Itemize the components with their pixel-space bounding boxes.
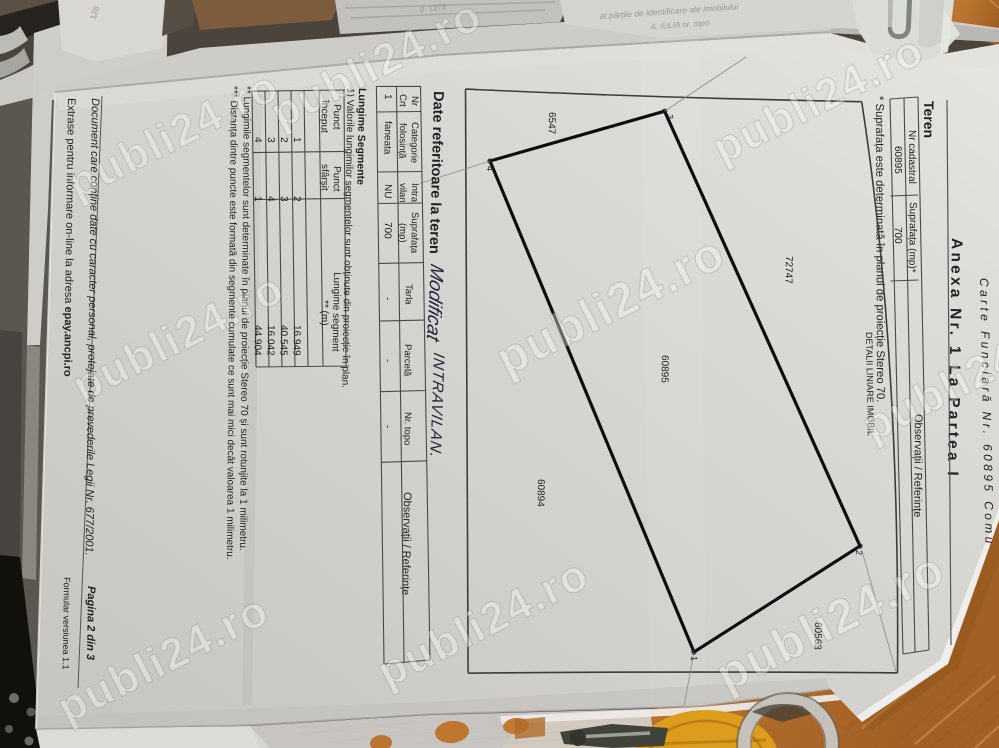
svg-text:1: 1 bbox=[382, 94, 393, 100]
svg-text:2: 2 bbox=[278, 137, 289, 143]
svg-text:Intra: Intra bbox=[409, 183, 420, 203]
svg-text:Suprafața: Suprafața bbox=[408, 212, 420, 254]
svg-text:** (m): ** (m) bbox=[319, 300, 330, 326]
svg-text:Nr cadastral: Nr cadastral bbox=[906, 130, 917, 184]
svg-text:Observații / Referințe: Observații / Referințe bbox=[399, 492, 413, 596]
svg-text:Formular versiunea 1.1: Formular versiunea 1.1 bbox=[61, 577, 72, 670]
svg-text:1: 1 bbox=[252, 196, 263, 202]
svg-text:44.904: 44.904 bbox=[251, 325, 263, 356]
svg-text:sfârșit: sfârșit bbox=[319, 164, 330, 191]
svg-text:60894: 60894 bbox=[535, 479, 546, 507]
svg-text:3: 3 bbox=[665, 114, 675, 119]
svg-text:Lungime Segmente: Lungime Segmente bbox=[354, 88, 368, 185]
svg-text:1: 1 bbox=[291, 137, 302, 143]
svg-text:vilan: vilan bbox=[397, 183, 408, 203]
svg-text:3: 3 bbox=[278, 196, 289, 202]
svg-text:Nr: Nr bbox=[409, 96, 420, 106]
svg-text:Categorie: Categorie bbox=[408, 122, 420, 163]
svg-text:Parcelă: Parcelă bbox=[401, 344, 413, 377]
svg-text:Teren: Teren bbox=[921, 101, 937, 138]
svg-text:16.042: 16.042 bbox=[264, 325, 276, 356]
svg-text:Punct: Punct bbox=[331, 166, 342, 192]
svg-text:4: 4 bbox=[252, 137, 263, 143]
svg-text:60895: 60895 bbox=[892, 146, 903, 174]
svg-text:(mp): (mp) bbox=[397, 223, 408, 243]
svg-text:-: - bbox=[382, 297, 393, 301]
svg-text:2: 2 bbox=[291, 196, 302, 202]
svg-text:4: 4 bbox=[265, 196, 276, 202]
svg-text:700: 700 bbox=[382, 222, 393, 239]
svg-text:faneata: faneata bbox=[381, 121, 393, 155]
svg-text:40.545: 40.545 bbox=[277, 325, 289, 356]
svg-text:1: 1 bbox=[689, 656, 699, 661]
svg-text:16.949: 16.949 bbox=[290, 325, 302, 356]
svg-text:NU: NU bbox=[382, 184, 393, 199]
svg-text:Suprafața (mp)*: Suprafața (mp)* bbox=[906, 202, 918, 273]
svg-text:-: - bbox=[382, 425, 393, 429]
svg-text:folosință: folosință bbox=[396, 123, 408, 159]
svg-text:4: 4 bbox=[485, 166, 495, 171]
svg-text:72747: 72747 bbox=[783, 256, 794, 284]
svg-text:Nr. topo: Nr. topo bbox=[401, 412, 413, 445]
svg-text:-: - bbox=[382, 359, 393, 363]
svg-text:2: 2 bbox=[854, 550, 864, 555]
svg-text:Modificat: Modificat bbox=[422, 262, 446, 346]
svg-text:3: 3 bbox=[265, 137, 276, 143]
svg-text:700: 700 bbox=[892, 227, 903, 244]
svg-text:Crt: Crt bbox=[397, 94, 408, 107]
svg-text:60895: 60895 bbox=[659, 355, 670, 383]
svg-text:6547: 6547 bbox=[546, 112, 557, 135]
svg-text:Tarla: Tarla bbox=[403, 284, 414, 305]
svg-text:Lungime segment: Lungime segment bbox=[330, 272, 342, 352]
svg-text:Pagina 2 din 3: Pagina 2 din 3 bbox=[84, 586, 97, 660]
